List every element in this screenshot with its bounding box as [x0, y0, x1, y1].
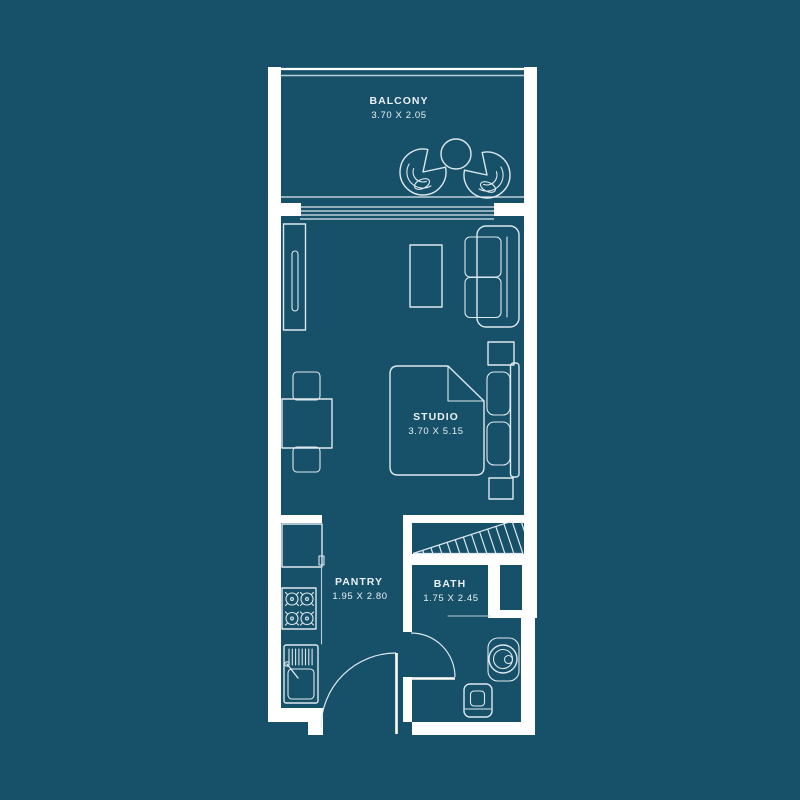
left-exterior-wall — [268, 67, 281, 722]
service-shaft — [500, 565, 522, 610]
studio-dimensions: 3.70 X 5.15 — [408, 426, 463, 437]
studio-bath-wall — [403, 515, 537, 523]
balcony-door-jamb-right — [494, 203, 524, 216]
bath-left-wall-upper — [403, 515, 412, 632]
floor-plan: BALCONY 3.70 X 2.05 — [0, 0, 800, 800]
floor-plan-canvas: BALCONY 3.70 X 2.05 — [0, 0, 800, 800]
bath-dimensions: 1.75 X 2.45 — [423, 593, 478, 604]
balcony-label: BALCONY — [370, 95, 429, 107]
pantry-label: PANTRY — [335, 576, 383, 588]
balcony-door-jamb-left — [281, 203, 301, 216]
studio-pantry-wall — [268, 515, 322, 523]
right-exterior-wall — [524, 67, 537, 565]
right-wall-lower — [521, 618, 535, 735]
bottom-wall-right — [412, 722, 535, 735]
bath-left-wall-lower — [403, 677, 412, 722]
studio-label: STUDIO — [413, 411, 459, 423]
pantry-dimensions: 1.95 X 2.80 — [332, 591, 387, 602]
bath-label: BATH — [434, 578, 466, 590]
balcony-dimensions: 3.70 X 2.05 — [371, 110, 426, 121]
